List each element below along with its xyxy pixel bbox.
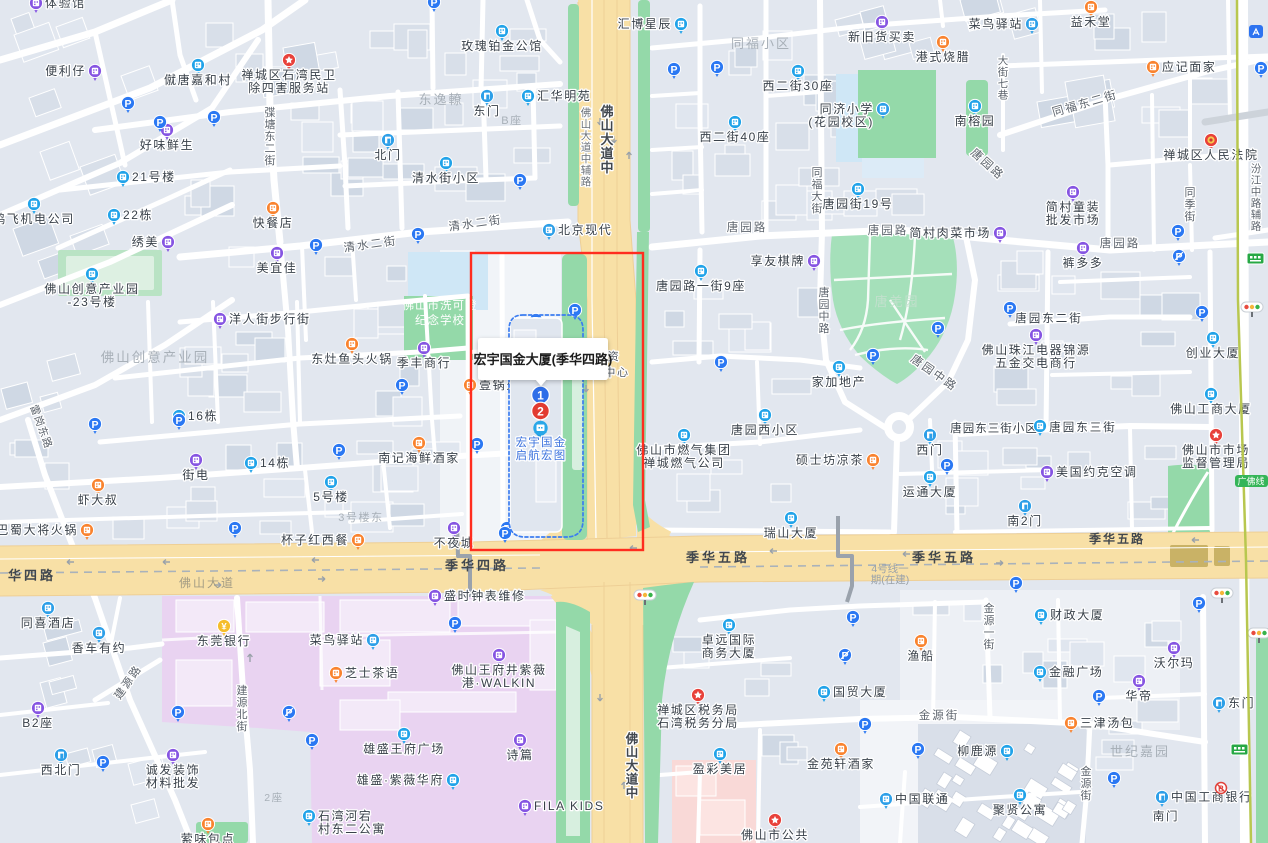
svg-text:中心: 中心 bbox=[604, 366, 629, 379]
svg-text:B2座: B2座 bbox=[22, 715, 53, 730]
svg-text:(花园校区): (花园校区) bbox=[808, 114, 874, 129]
svg-text:汾: 汾 bbox=[1251, 163, 1262, 175]
svg-text:辅: 辅 bbox=[1251, 208, 1262, 221]
svg-text:东灶鱼头火锅: 东灶鱼头火锅 bbox=[311, 351, 393, 366]
svg-text:七: 七 bbox=[998, 78, 1009, 90]
svg-text:唐园路: 唐园路 bbox=[1100, 236, 1141, 250]
svg-text:香车有约: 香车有约 bbox=[72, 640, 126, 655]
svg-text:弽: 弽 bbox=[265, 105, 276, 119]
svg-text:华四路: 华四路 bbox=[8, 568, 56, 583]
svg-text:金源街: 金源街 bbox=[919, 708, 960, 722]
svg-text:期(在建): 期(在建) bbox=[871, 573, 910, 586]
svg-text:北京现代: 北京现代 bbox=[558, 223, 612, 237]
svg-text:路: 路 bbox=[1251, 197, 1262, 210]
svg-text:21号楼: 21号楼 bbox=[132, 169, 176, 184]
svg-text:季华四路: 季华四路 bbox=[444, 558, 509, 573]
svg-text:新旧货买卖: 新旧货买卖 bbox=[848, 29, 916, 44]
svg-text:中: 中 bbox=[626, 785, 639, 800]
svg-text:渔船: 渔船 bbox=[907, 649, 934, 663]
svg-text:村东二公寓: 村东二公寓 bbox=[318, 821, 386, 836]
svg-text:国贸大厦: 国贸大厦 bbox=[833, 685, 887, 699]
svg-text:P: P bbox=[335, 445, 342, 457]
svg-text:美宜佳: 美宜佳 bbox=[257, 260, 298, 275]
svg-text:美国约克空调: 美国约克空调 bbox=[1056, 464, 1138, 479]
svg-text:唐园路: 唐园路 bbox=[868, 223, 909, 237]
svg-text:唐园街19号: 唐园街19号 bbox=[823, 196, 894, 211]
svg-text:P: P bbox=[934, 323, 941, 335]
svg-text:大: 大 bbox=[998, 54, 1009, 67]
svg-text:南2门: 南2门 bbox=[1007, 513, 1042, 528]
svg-text:佛: 佛 bbox=[599, 104, 613, 119]
svg-text:P: P bbox=[571, 305, 578, 317]
svg-text:石湾河宕: 石湾河宕 bbox=[318, 808, 372, 823]
svg-text:福: 福 bbox=[812, 177, 823, 191]
svg-text:世纪嘉园: 世纪嘉园 bbox=[1110, 744, 1170, 759]
svg-text:体验馆: 体验馆 bbox=[45, 0, 86, 10]
svg-text:东: 东 bbox=[265, 130, 276, 143]
svg-text:西北门: 西北门 bbox=[41, 762, 82, 777]
svg-text:中国联通: 中国联通 bbox=[895, 791, 949, 806]
svg-text:中: 中 bbox=[819, 310, 830, 323]
svg-text:雄盛·紫薇华府: 雄盛·紫薇华府 bbox=[357, 772, 444, 787]
svg-text:P: P bbox=[174, 707, 181, 719]
svg-text:同: 同 bbox=[812, 167, 823, 179]
svg-text:材料批发: 材料批发 bbox=[146, 775, 200, 790]
svg-text:港式烧腊: 港式烧腊 bbox=[916, 50, 970, 64]
svg-text:佛山市公共: 佛山市公共 bbox=[741, 827, 809, 842]
svg-text:22栋: 22栋 bbox=[123, 207, 153, 222]
svg-text:P: P bbox=[1195, 598, 1202, 610]
svg-text:三津汤包: 三津汤包 bbox=[1080, 716, 1134, 730]
svg-text:南榕园: 南榕园 bbox=[955, 113, 996, 128]
svg-text:绣美: 绣美 bbox=[132, 235, 159, 249]
svg-text:金融广场: 金融广场 bbox=[1049, 664, 1103, 679]
svg-text:P: P bbox=[99, 757, 106, 769]
svg-text:源: 源 bbox=[237, 695, 248, 709]
svg-text:P: P bbox=[717, 357, 724, 369]
svg-text:盈彩美居: 盈彩美居 bbox=[693, 762, 747, 776]
svg-text:杯子红西餐: 杯子红西餐 bbox=[281, 532, 349, 547]
svg-text:中: 中 bbox=[600, 160, 613, 175]
svg-text:佛山工商大厦: 佛山工商大厦 bbox=[1170, 401, 1252, 416]
svg-text:商务大厦: 商务大厦 bbox=[702, 645, 756, 660]
svg-text:江: 江 bbox=[1251, 175, 1262, 187]
svg-text:塘: 塘 bbox=[265, 117, 276, 131]
svg-text:FILA KIDS: FILA KIDS bbox=[534, 799, 604, 813]
svg-text:聚贤公寓: 聚贤公寓 bbox=[993, 802, 1047, 817]
svg-text:唐园西小区: 唐园西小区 bbox=[731, 422, 799, 437]
svg-text:P: P bbox=[1257, 63, 1264, 75]
svg-text:华帝: 华帝 bbox=[1125, 688, 1152, 703]
svg-text:同济小学: 同济小学 bbox=[820, 101, 874, 116]
svg-text:季: 季 bbox=[1185, 198, 1196, 211]
svg-text:宏宇国金: 宏宇国金 bbox=[516, 435, 567, 449]
svg-text:禅城燃气公司: 禅城燃气公司 bbox=[643, 455, 725, 470]
svg-text:季丰商行: 季丰商行 bbox=[397, 355, 451, 370]
svg-text:南记海鲜酒家: 南记海鲜酒家 bbox=[378, 450, 460, 465]
svg-text:季华五路: 季华五路 bbox=[911, 550, 976, 565]
svg-text:巴蜀大将火锅: 巴蜀大将火锅 bbox=[0, 522, 78, 537]
svg-text:萦味包点: 萦味包点 bbox=[181, 832, 235, 843]
svg-text:佛山创意产业园: 佛山创意产业园 bbox=[101, 349, 210, 365]
svg-text:五金交电商行: 五金交电商行 bbox=[995, 355, 1077, 370]
svg-text:一: 一 bbox=[984, 627, 995, 639]
svg-text:P: P bbox=[175, 415, 182, 427]
svg-text:街: 街 bbox=[265, 153, 276, 167]
svg-text:P: P bbox=[210, 112, 217, 124]
svg-text:西二街40座: 西二街40座 bbox=[700, 129, 771, 144]
svg-text:南门: 南门 bbox=[1153, 809, 1179, 823]
svg-text:P: P bbox=[1198, 307, 1205, 319]
svg-text:街: 街 bbox=[1185, 209, 1196, 223]
svg-text:16栋: 16栋 bbox=[188, 408, 218, 423]
svg-text:西门: 西门 bbox=[916, 442, 943, 457]
svg-text:P: P bbox=[414, 229, 421, 241]
svg-text:金苑轩酒家: 金苑轩酒家 bbox=[807, 756, 875, 771]
svg-text:二: 二 bbox=[265, 143, 276, 155]
svg-text:路: 路 bbox=[819, 322, 830, 335]
svg-text:大: 大 bbox=[812, 189, 823, 203]
svg-text:快餐店: 快餐店 bbox=[253, 215, 294, 230]
svg-text:P: P bbox=[713, 62, 720, 74]
svg-text:应记面家: 应记面家 bbox=[1162, 59, 1216, 74]
svg-text:金: 金 bbox=[1081, 764, 1092, 778]
svg-text:批发市场: 批发市场 bbox=[1046, 212, 1100, 227]
svg-text:P: P bbox=[861, 719, 868, 731]
svg-text:好味鲜生: 好味鲜生 bbox=[140, 138, 194, 152]
svg-text:鸣飞机电公司: 鸣飞机电公司 bbox=[0, 211, 75, 226]
svg-text:P: P bbox=[430, 0, 437, 9]
svg-text:运通大厦: 运通大厦 bbox=[903, 485, 957, 499]
svg-text:佛山王府井紫薇: 佛山王府井紫薇 bbox=[451, 662, 546, 677]
svg-text:广佛线: 广佛线 bbox=[1237, 476, 1264, 487]
svg-text:柳鹿源: 柳鹿源 bbox=[957, 743, 998, 758]
svg-text:雄盛王府广场: 雄盛王府广场 bbox=[363, 741, 445, 756]
svg-text:东逸轑: 东逸轑 bbox=[418, 92, 463, 107]
svg-text:P: P bbox=[1095, 691, 1102, 703]
svg-text:季华五路: 季华五路 bbox=[685, 550, 750, 565]
svg-text:街: 街 bbox=[1081, 788, 1092, 802]
svg-text:北门: 北门 bbox=[374, 147, 401, 162]
svg-text:中: 中 bbox=[581, 152, 592, 165]
svg-text:虾大叔: 虾大叔 bbox=[78, 493, 119, 507]
svg-text:季华五路: 季华五路 bbox=[1088, 531, 1145, 546]
svg-text:禅城区税务局: 禅城区税务局 bbox=[657, 702, 739, 717]
svg-text:菜鸟驿站: 菜鸟驿站 bbox=[310, 632, 364, 647]
svg-text:2: 2 bbox=[537, 405, 544, 419]
svg-text:路: 路 bbox=[1251, 220, 1262, 233]
svg-text:清水街小区: 清水街小区 bbox=[412, 171, 480, 185]
svg-text:源: 源 bbox=[1081, 776, 1092, 790]
svg-text:街: 街 bbox=[812, 201, 823, 215]
svg-text:佛山大道: 佛山大道 bbox=[179, 576, 235, 590]
svg-text:P: P bbox=[943, 460, 950, 472]
svg-text:P: P bbox=[1110, 773, 1117, 785]
svg-text:佛: 佛 bbox=[625, 731, 639, 746]
svg-text:硕士坊凉茶: 硕士坊凉茶 bbox=[796, 452, 864, 467]
svg-text:唐园东三街小区: 唐园东三街小区 bbox=[950, 421, 1038, 435]
svg-text:街: 街 bbox=[984, 637, 995, 651]
svg-text:唐园东二街: 唐园东二街 bbox=[1015, 311, 1083, 325]
svg-text:监督管理局: 监督管理局 bbox=[1182, 455, 1250, 470]
svg-text:P: P bbox=[312, 240, 319, 252]
svg-text:东门: 东门 bbox=[1228, 695, 1255, 710]
svg-text:街电: 街电 bbox=[182, 468, 209, 482]
svg-text:佛山市市场: 佛山市市场 bbox=[1182, 442, 1250, 457]
svg-text:巷: 巷 bbox=[998, 90, 1009, 102]
svg-text:路: 路 bbox=[581, 175, 592, 188]
svg-text:P: P bbox=[308, 735, 315, 747]
svg-text:享友棋牌: 享友棋牌 bbox=[751, 253, 805, 268]
svg-text:P: P bbox=[849, 612, 856, 624]
svg-text:玫瑰铂金公馆: 玫瑰铂金公馆 bbox=[461, 38, 543, 53]
svg-text:P: P bbox=[670, 64, 677, 76]
svg-text:汇博星辰: 汇博星辰 bbox=[618, 16, 672, 31]
svg-text:山: 山 bbox=[626, 745, 639, 760]
svg-text:中: 中 bbox=[1251, 185, 1262, 198]
svg-text:瑞山大厦: 瑞山大厦 bbox=[764, 526, 818, 540]
svg-text:卓远国际: 卓远国际 bbox=[702, 633, 756, 647]
svg-text:芝士茶语: 芝士茶语 bbox=[345, 665, 399, 680]
svg-text:佛山市燃气集团: 佛山市燃气集团 bbox=[636, 442, 731, 457]
svg-text:盛时钟表维修: 盛时钟表维修 bbox=[444, 588, 526, 603]
svg-text:2座: 2座 bbox=[264, 791, 284, 804]
svg-text:园: 园 bbox=[819, 298, 830, 311]
svg-text:佛: 佛 bbox=[581, 106, 592, 119]
svg-text:石湾税务分局: 石湾税务分局 bbox=[657, 715, 739, 730]
svg-text:同: 同 bbox=[1185, 187, 1196, 199]
svg-text:诚发装饰: 诚发装饰 bbox=[146, 762, 200, 777]
svg-text:辅: 辅 bbox=[581, 164, 592, 177]
svg-text:P: P bbox=[398, 380, 405, 392]
svg-text:佛山创意产业园: 佛山创意产业园 bbox=[44, 281, 139, 296]
svg-text:3号楼东: 3号楼东 bbox=[338, 510, 384, 524]
svg-text:山: 山 bbox=[581, 119, 592, 131]
svg-text:裤多多: 裤多多 bbox=[1063, 256, 1104, 270]
svg-text:汇华明苑: 汇华明苑 bbox=[537, 89, 591, 103]
svg-text:P: P bbox=[869, 350, 876, 362]
svg-text:中国工商银行: 中国工商银行 bbox=[1171, 789, 1253, 804]
svg-text:港·WALKIN: 港·WALKIN bbox=[462, 676, 536, 690]
svg-text:宏宇国金大厦(季华四路): 宏宇国金大厦(季华四路) bbox=[474, 352, 613, 367]
svg-text:金: 金 bbox=[984, 601, 995, 615]
svg-text:北: 北 bbox=[237, 708, 248, 721]
svg-text:P: P bbox=[91, 419, 98, 431]
svg-text:东莞银行: 东莞银行 bbox=[197, 634, 251, 648]
svg-text:沃尔玛: 沃尔玛 bbox=[1154, 655, 1195, 670]
svg-text:山: 山 bbox=[600, 118, 613, 133]
svg-text:P: P bbox=[516, 175, 523, 187]
svg-text:P: P bbox=[473, 439, 480, 451]
svg-text:简村肉菜市场: 简村肉菜市场 bbox=[909, 225, 991, 240]
svg-text:同福小区: 同福小区 bbox=[731, 36, 791, 51]
svg-text:唐园路: 唐园路 bbox=[727, 220, 768, 234]
svg-text:P: P bbox=[1174, 226, 1181, 238]
svg-text:不夜城: 不夜城 bbox=[434, 535, 475, 550]
svg-text:唐园东三街: 唐园东三街 bbox=[1049, 420, 1117, 434]
svg-text:简村童装: 简村童装 bbox=[1046, 199, 1100, 214]
svg-text:P: P bbox=[124, 98, 131, 110]
svg-text:5号楼: 5号楼 bbox=[313, 489, 348, 504]
svg-text:禅城区石湾民卫: 禅城区石湾民卫 bbox=[241, 67, 336, 82]
svg-text:¥: ¥ bbox=[221, 622, 227, 633]
svg-text:P: P bbox=[1006, 303, 1013, 315]
svg-text:诗篇: 诗篇 bbox=[506, 747, 533, 762]
svg-text:家加地产: 家加地产 bbox=[812, 374, 866, 389]
svg-text:建: 建 bbox=[237, 683, 248, 697]
svg-text:唐羌园: 唐羌园 bbox=[874, 294, 919, 309]
svg-text:街: 街 bbox=[998, 66, 1009, 79]
svg-text:道: 道 bbox=[600, 146, 613, 161]
svg-text:启航宏图: 启航宏图 bbox=[516, 448, 567, 462]
svg-text:街: 街 bbox=[237, 719, 248, 733]
svg-text:益禾堂: 益禾堂 bbox=[1071, 15, 1112, 29]
svg-text:创业大厦: 创业大厦 bbox=[1186, 346, 1240, 360]
svg-text:同喜酒店: 同喜酒店 bbox=[21, 616, 75, 630]
svg-text:P: P bbox=[501, 528, 508, 540]
svg-text:1: 1 bbox=[537, 389, 544, 403]
svg-text:唐: 唐 bbox=[819, 285, 830, 299]
svg-text:唐园路一街9座: 唐园路一街9座 bbox=[656, 278, 746, 293]
svg-text:大: 大 bbox=[600, 132, 613, 147]
svg-text:14栋: 14栋 bbox=[260, 455, 290, 470]
svg-text:洋人街步行街: 洋人街步行街 bbox=[229, 311, 311, 326]
svg-text:P: P bbox=[156, 117, 163, 129]
svg-text:东门: 东门 bbox=[473, 103, 500, 118]
svg-text:大: 大 bbox=[581, 129, 592, 142]
svg-text:P: P bbox=[1012, 578, 1019, 590]
svg-text:僦唐嘉和村: 僦唐嘉和村 bbox=[164, 72, 232, 87]
svg-text:P: P bbox=[914, 744, 921, 756]
svg-text:财政大厦: 财政大厦 bbox=[1050, 608, 1104, 622]
svg-text:大: 大 bbox=[626, 758, 639, 773]
svg-text:禅城区人民法院: 禅城区人民法院 bbox=[1163, 148, 1258, 162]
svg-text:-23号楼: -23号楼 bbox=[67, 294, 116, 309]
svg-text:除四害服务站: 除四害服务站 bbox=[248, 80, 330, 95]
svg-text:P: P bbox=[451, 618, 458, 630]
svg-text:菜鸟驿站: 菜鸟驿站 bbox=[969, 16, 1023, 31]
svg-text:道: 道 bbox=[626, 772, 639, 787]
svg-text:便利仔: 便利仔 bbox=[45, 64, 86, 78]
svg-text:源: 源 bbox=[984, 613, 995, 627]
svg-text:道: 道 bbox=[581, 141, 592, 154]
svg-text:西二街30座: 西二街30座 bbox=[763, 78, 834, 93]
svg-text:P: P bbox=[231, 523, 238, 535]
svg-text:佛山珠江电器锦源: 佛山珠江电器锦源 bbox=[982, 343, 1091, 357]
svg-text:B座: B座 bbox=[501, 113, 523, 127]
svg-text:纪念学校: 纪念学校 bbox=[415, 313, 465, 327]
